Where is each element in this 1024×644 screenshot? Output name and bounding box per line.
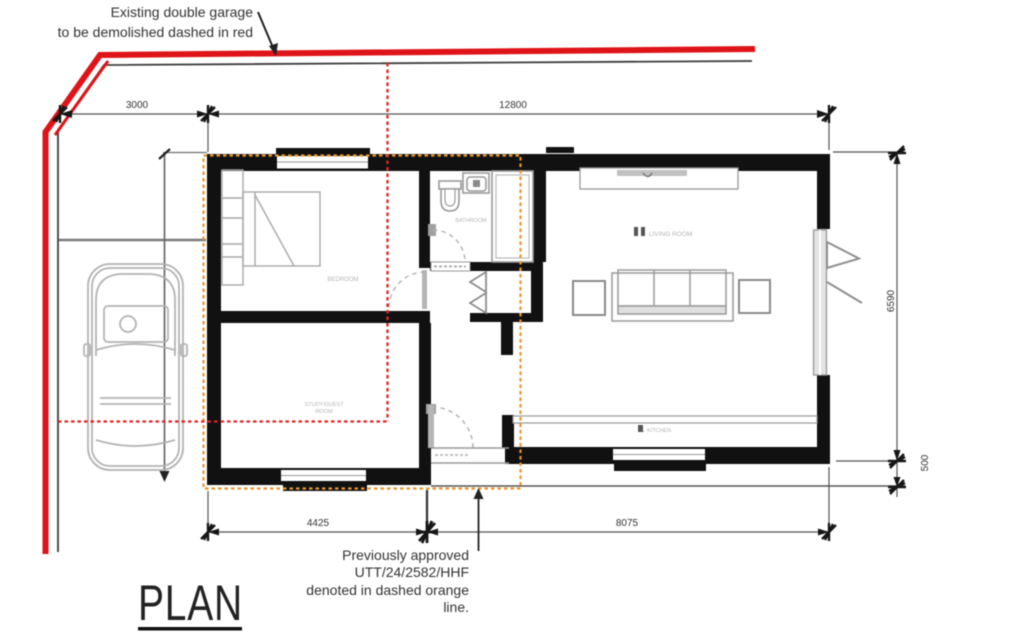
svg-text:STUDY/GUEST: STUDY/GUEST <box>304 402 344 408</box>
svg-text:8075: 8075 <box>616 518 639 529</box>
svg-text:KITCHEN: KITCHEN <box>647 428 671 434</box>
svg-text:6590: 6590 <box>886 289 897 312</box>
svg-text:12800: 12800 <box>499 100 527 111</box>
svg-text:4425: 4425 <box>307 518 330 529</box>
svg-text:Existing double garage: Existing double garage <box>111 4 254 20</box>
svg-text:ROOM: ROOM <box>315 409 333 415</box>
svg-text:line.: line. <box>443 599 469 615</box>
svg-text:to be demolished dashed in red: to be demolished dashed in red <box>58 24 253 40</box>
svg-text:3000: 3000 <box>126 100 149 111</box>
svg-text:LIVING ROOM: LIVING ROOM <box>649 231 692 238</box>
svg-text:denoted in dashed orange: denoted in dashed orange <box>306 582 469 598</box>
svg-text:Previously approved: Previously approved <box>342 547 469 563</box>
svg-text:PLAN: PLAN <box>138 574 243 631</box>
svg-text:BEDROOM: BEDROOM <box>327 277 358 283</box>
svg-text:UTT/24/2582/HHF: UTT/24/2582/HHF <box>355 564 469 580</box>
svg-text:BATHROOM: BATHROOM <box>455 218 487 224</box>
svg-text:500: 500 <box>920 454 931 471</box>
